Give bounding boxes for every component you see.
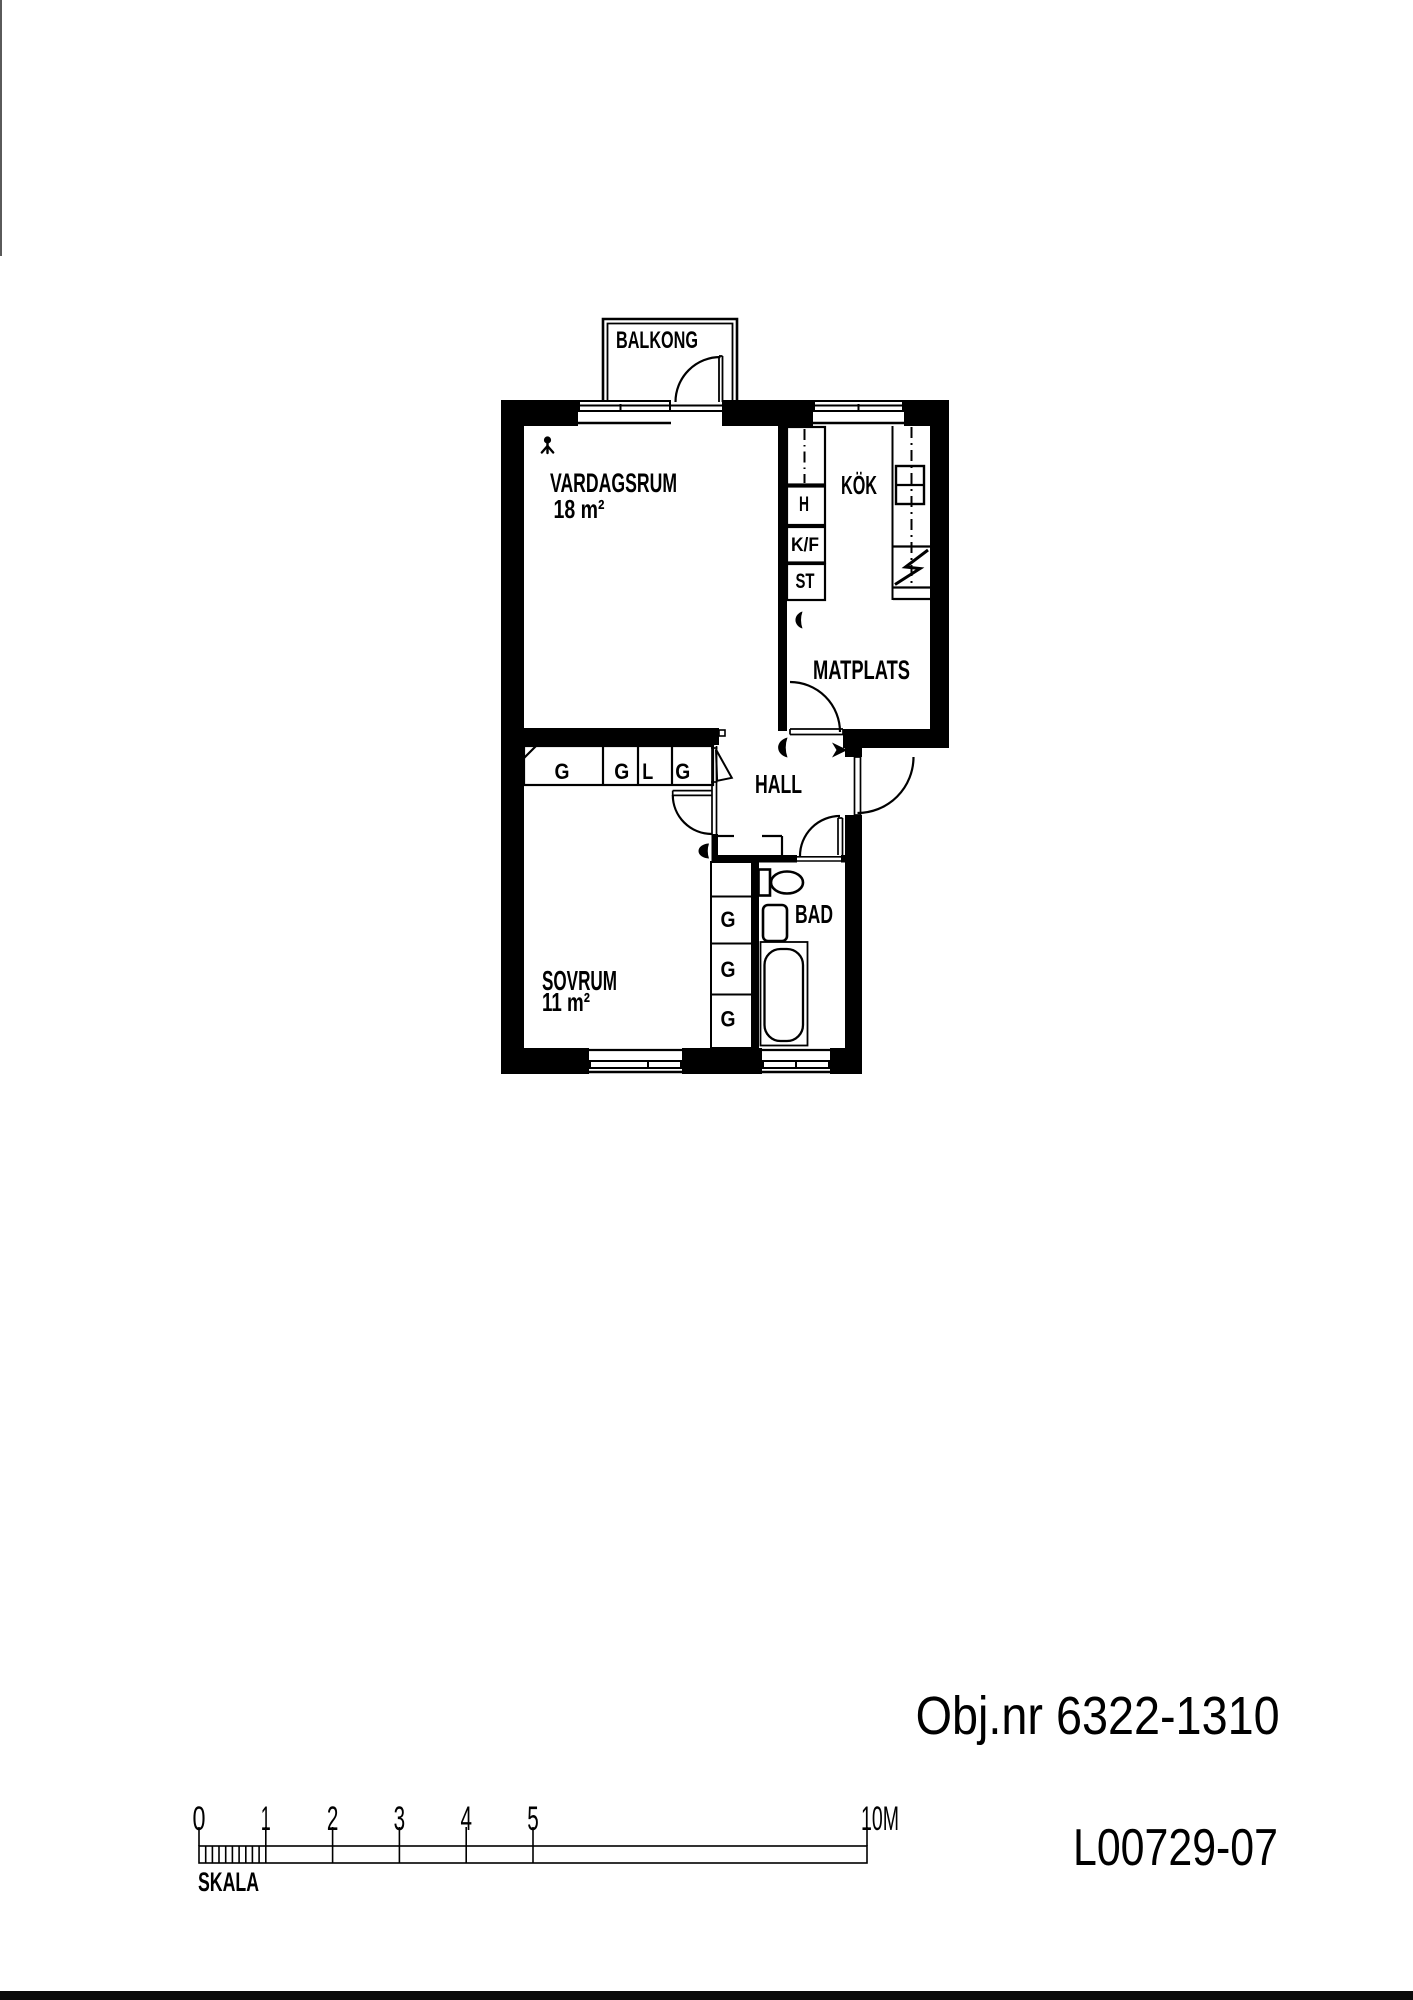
- svg-text:BALKONG: BALKONG: [616, 327, 698, 354]
- svg-text:L00729-07: L00729-07: [1073, 1819, 1278, 1877]
- svg-text:18 m²: 18 m²: [554, 494, 605, 524]
- svg-text:ST: ST: [796, 570, 815, 593]
- svg-text:4: 4: [460, 1800, 472, 1838]
- svg-text:0: 0: [193, 1800, 206, 1838]
- svg-text:G: G: [721, 907, 736, 932]
- svg-text:3: 3: [394, 1800, 406, 1838]
- svg-text:11 m²: 11 m²: [542, 987, 590, 1017]
- svg-text:G: G: [555, 759, 570, 784]
- svg-text:BAD: BAD: [795, 899, 833, 929]
- svg-text:HALL: HALL: [755, 769, 802, 799]
- svg-text:Obj.nr 6322-1310: Obj.nr 6322-1310: [916, 1686, 1280, 1746]
- svg-text:1: 1: [261, 1800, 271, 1838]
- svg-text:G: G: [675, 759, 690, 784]
- svg-text:H: H: [799, 493, 809, 516]
- svg-text:G: G: [721, 1007, 736, 1032]
- svg-text:G: G: [721, 957, 736, 982]
- svg-text:MATPLATS: MATPLATS: [813, 655, 910, 685]
- svg-text:L: L: [642, 759, 653, 784]
- svg-text:K/F: K/F: [791, 535, 819, 556]
- svg-text:G: G: [614, 759, 629, 784]
- svg-text:KÖK: KÖK: [841, 470, 877, 500]
- svg-text:SKALA: SKALA: [198, 1867, 259, 1897]
- svg-text:10M: 10M: [861, 1800, 899, 1838]
- svg-text:2: 2: [327, 1800, 339, 1838]
- svg-text:5: 5: [527, 1800, 539, 1838]
